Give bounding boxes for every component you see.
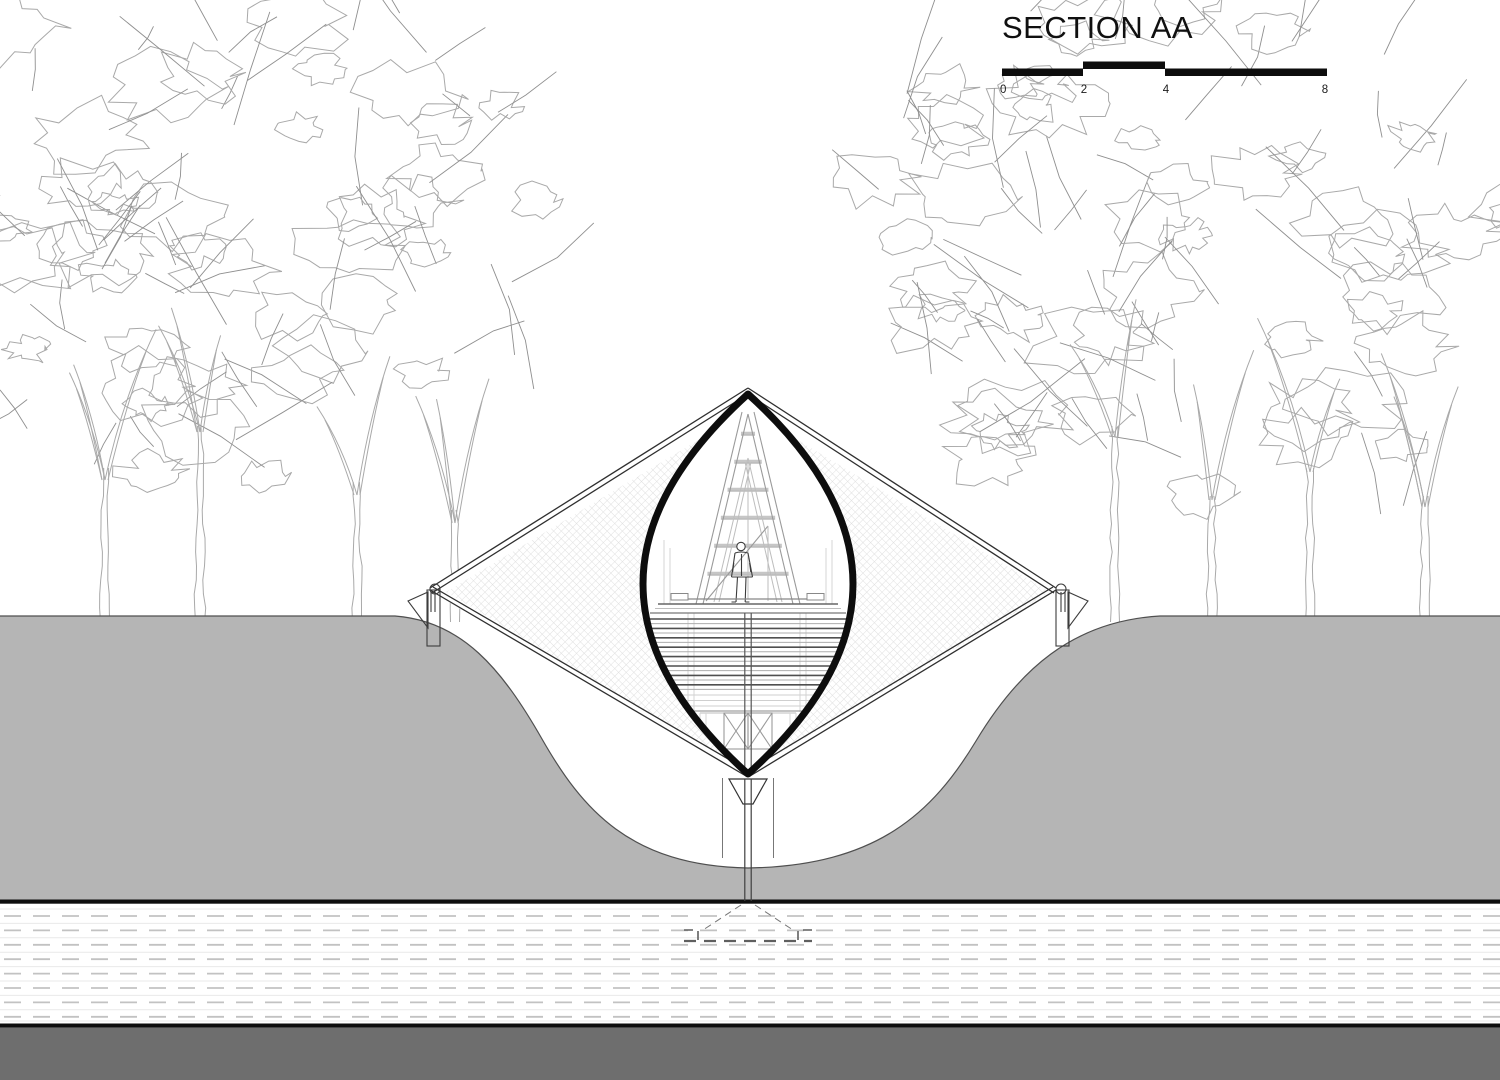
scale-label-4: 4 (1163, 84, 1170, 96)
title-block: SECTION AA 0 2 4 8 (1000, 10, 1328, 96)
ground-line-top (0, 900, 1500, 904)
ground-line-bottom (0, 1024, 1500, 1028)
scale-bar: 0 2 4 8 (1000, 62, 1328, 97)
tree-cluster-left (0, 0, 594, 622)
architectural-section-sheet: SECTION AA 0 2 4 8 (0, 0, 1500, 1080)
scale-label-2: 2 (1081, 84, 1087, 96)
drawing-title: SECTION AA (1002, 10, 1193, 45)
scale-label-8: 8 (1322, 84, 1328, 96)
base-band (0, 1028, 1500, 1080)
scale-label-0: 0 (1000, 84, 1006, 96)
base-funnel (729, 779, 767, 804)
section-drawing: SECTION AA 0 2 4 8 (0, 0, 1500, 1080)
substrate-layers (0, 909, 1500, 1021)
